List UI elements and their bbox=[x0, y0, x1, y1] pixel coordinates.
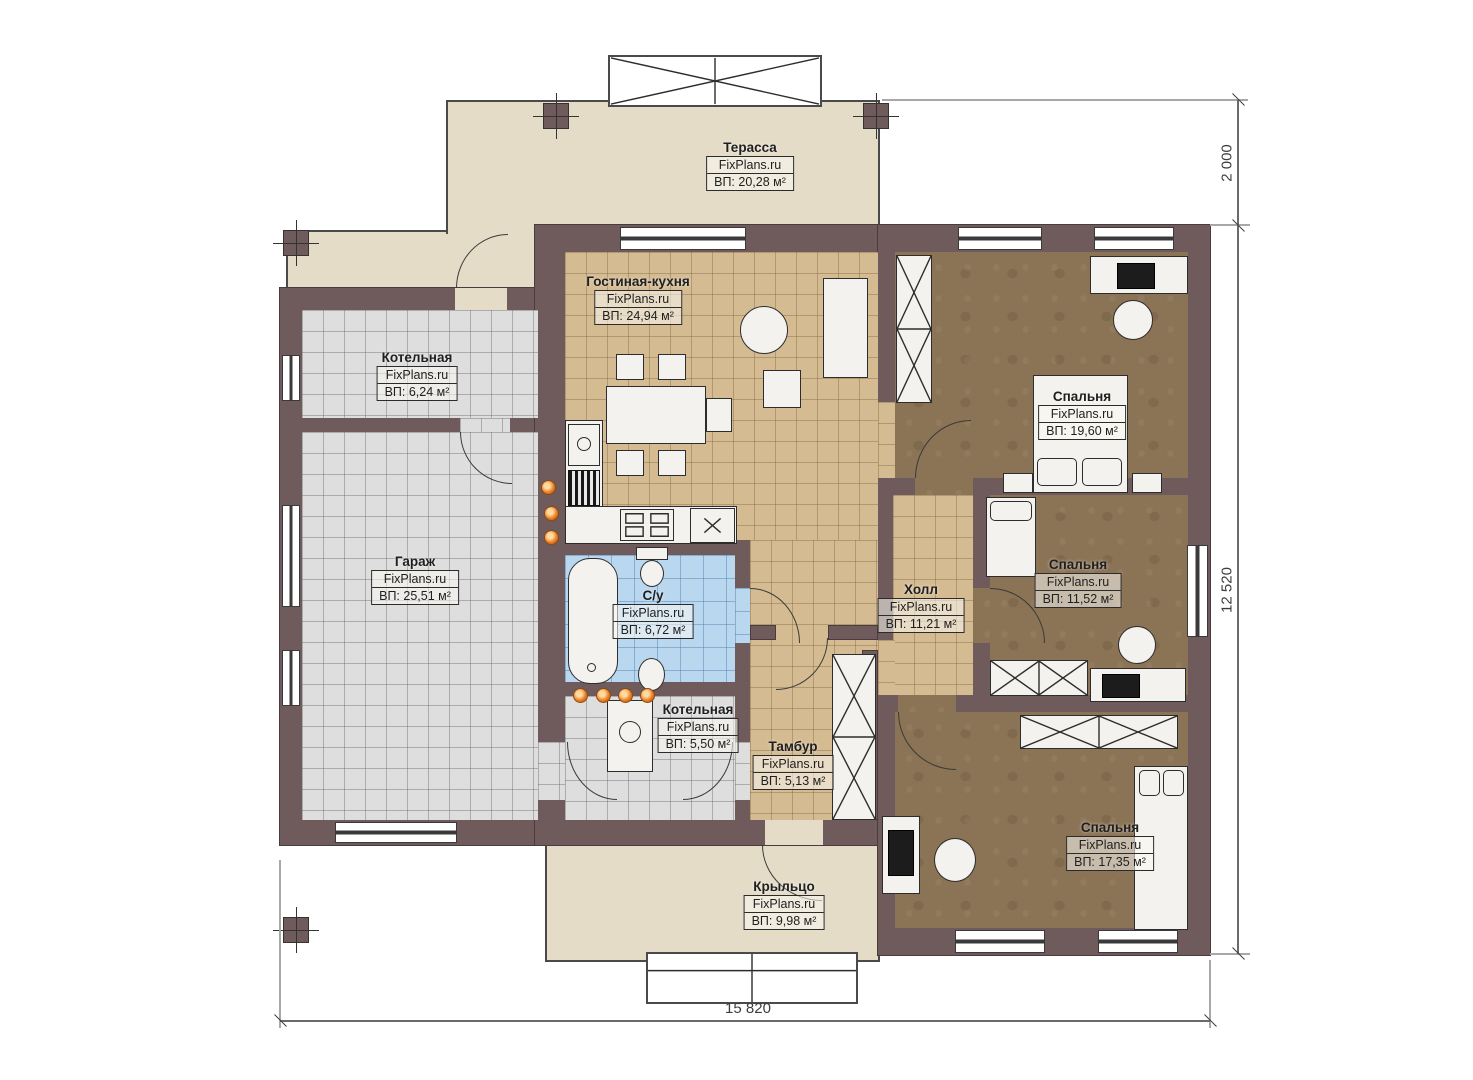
chair bbox=[616, 354, 644, 380]
closet-hall bbox=[990, 660, 1088, 696]
extension-line bbox=[1210, 953, 1250, 955]
window-bedroom2 bbox=[1187, 545, 1208, 637]
garage-floor bbox=[302, 432, 538, 820]
stove bbox=[620, 509, 674, 541]
wall-corridor-stub-right bbox=[828, 625, 878, 640]
room-label-vestibule: Тамбур FixPlans.ru ВП: 5,13 м² bbox=[753, 739, 834, 790]
room-brand: FixPlans.ru bbox=[372, 571, 458, 588]
steps-pattern bbox=[648, 954, 856, 1002]
office-chair bbox=[1118, 626, 1156, 664]
nightstand bbox=[1003, 473, 1033, 493]
room-brand: FixPlans.ru bbox=[754, 756, 833, 773]
sink-basin-icon bbox=[577, 437, 591, 451]
bathroom-sink bbox=[638, 658, 665, 691]
room-name: Крыльцо bbox=[744, 879, 825, 894]
window-boiler1 bbox=[282, 355, 300, 401]
extension-line bbox=[1210, 224, 1250, 226]
room-label-boiler2: Котельная FixPlans.ru ВП: 5,50 м² bbox=[658, 702, 739, 753]
boiler-dial-icon bbox=[619, 721, 641, 743]
opening-living-hall bbox=[878, 402, 895, 478]
nightstand bbox=[1132, 473, 1162, 493]
door-opening-bedroom2 bbox=[973, 588, 990, 643]
door-opening-terrace bbox=[455, 288, 507, 310]
window-garage-a bbox=[282, 505, 300, 607]
valve-icon bbox=[618, 688, 633, 703]
wardrobe-vestibule bbox=[832, 654, 876, 820]
opening-corridor-hall bbox=[878, 640, 895, 695]
room-name: Спальня bbox=[1035, 557, 1122, 572]
room-name: Гараж bbox=[371, 554, 459, 569]
pillow bbox=[1139, 770, 1160, 796]
door-opening-bedroom1 bbox=[915, 478, 973, 495]
round-table bbox=[740, 306, 788, 354]
office-chair bbox=[934, 838, 976, 882]
valve-icon bbox=[544, 506, 559, 521]
column bbox=[863, 103, 889, 129]
room-name: Тамбур bbox=[753, 739, 834, 754]
room-label-bathroom: С/у FixPlans.ru ВП: 6,72 м² bbox=[613, 588, 694, 639]
room-name: Спальня bbox=[1038, 389, 1126, 404]
room-area: ВП: 5,13 м² bbox=[754, 773, 833, 789]
window-bedroom3-b bbox=[1098, 930, 1178, 953]
room-label-garage: Гараж FixPlans.ru ВП: 25,51 м² bbox=[371, 554, 459, 605]
room-label-living-kitchen: Гостиная-кухня FixPlans.ru ВП: 24,94 м² bbox=[586, 274, 689, 325]
column bbox=[543, 103, 569, 129]
pillow bbox=[1082, 458, 1122, 486]
room-area: ВП: 11,52 м² bbox=[1036, 591, 1121, 607]
dimension-line-side bbox=[1237, 226, 1239, 954]
window-bedroom3-a bbox=[955, 930, 1045, 953]
room-name: Котельная bbox=[377, 350, 458, 365]
column bbox=[283, 230, 309, 256]
room-name: Спальня bbox=[1066, 820, 1154, 835]
porch-floor bbox=[545, 845, 880, 962]
room-brand: FixPlans.ru bbox=[707, 157, 793, 174]
toilet-bowl bbox=[640, 560, 664, 587]
room-area: ВП: 19,60 м² bbox=[1039, 423, 1125, 439]
office-chair bbox=[1113, 300, 1153, 340]
room-label-boiler1: Котельная FixPlans.ru ВП: 6,24 м² bbox=[377, 350, 458, 401]
extension-line bbox=[882, 99, 1248, 101]
dim-tick bbox=[1232, 219, 1245, 232]
extension-line bbox=[279, 860, 281, 1028]
x-pattern bbox=[833, 655, 875, 819]
room-brand: FixPlans.ru bbox=[1067, 837, 1153, 854]
bathtub bbox=[568, 558, 618, 684]
room-area: ВП: 6,72 м² bbox=[614, 622, 693, 638]
printer-icon bbox=[1102, 674, 1140, 698]
dining-table bbox=[606, 386, 706, 444]
wardrobe-bedroom1 bbox=[896, 255, 932, 403]
chair bbox=[706, 398, 732, 432]
room-area: ВП: 9,98 м² bbox=[745, 913, 824, 929]
window-garage-b bbox=[282, 650, 300, 706]
kitchen-sink bbox=[568, 424, 600, 466]
dimension-label-bottom: 15 820 bbox=[725, 1000, 771, 1017]
door-opening-garage-boiler2 bbox=[538, 742, 565, 800]
room-label-porch: Крыльцо FixPlans.ru ВП: 9,98 м² bbox=[744, 879, 825, 930]
room-area: ВП: 5,50 м² bbox=[659, 736, 738, 752]
dimension-label-side: 12 520 bbox=[1219, 567, 1236, 613]
room-brand: FixPlans.ru bbox=[1039, 406, 1125, 423]
chair bbox=[658, 354, 686, 380]
room-label-terrace: Терасса FixPlans.ru ВП: 20,28 м² bbox=[706, 140, 794, 191]
room-name: Холл bbox=[878, 582, 965, 597]
door-opening-entrance bbox=[765, 820, 823, 845]
room-area: ВП: 6,24 м² bbox=[378, 384, 457, 400]
room-brand: FixPlans.ru bbox=[659, 719, 738, 736]
room-brand: FixPlans.ru bbox=[745, 896, 824, 913]
roof-vent-symbol bbox=[608, 55, 822, 107]
dimension-line-terrace bbox=[1237, 100, 1239, 226]
dimension-label-terrace: 2 000 bbox=[1219, 144, 1236, 182]
room-area: ВП: 24,94 м² bbox=[595, 308, 681, 324]
toilet-tank bbox=[636, 547, 668, 560]
pillow bbox=[990, 501, 1032, 521]
x-pattern bbox=[991, 661, 1087, 695]
room-name: Терасса bbox=[706, 140, 794, 155]
room-brand: FixPlans.ru bbox=[595, 291, 681, 308]
terrace-floor bbox=[446, 100, 880, 234]
x-pattern bbox=[897, 256, 931, 402]
bathtub-drain-icon bbox=[587, 663, 596, 672]
room-name: Гостиная-кухня bbox=[586, 274, 689, 289]
stove-burners-icon bbox=[621, 510, 673, 540]
x-pattern bbox=[1021, 716, 1177, 748]
valve-icon bbox=[596, 688, 611, 703]
room-brand: FixPlans.ru bbox=[614, 605, 693, 622]
roof-vent-pattern bbox=[610, 57, 820, 105]
appliance-x-icon bbox=[691, 509, 734, 542]
dimension-line-bottom bbox=[280, 1020, 1210, 1022]
room-area: ВП: 11,21 м² bbox=[879, 616, 964, 632]
room-area: ВП: 20,28 м² bbox=[707, 174, 793, 190]
door-opening-bedroom3 bbox=[898, 695, 956, 712]
column bbox=[283, 917, 309, 943]
valve-icon bbox=[573, 688, 588, 703]
printer-icon bbox=[1117, 263, 1155, 289]
valve-icon bbox=[640, 688, 655, 703]
door-opening-bathroom bbox=[735, 588, 750, 643]
porch-steps bbox=[646, 952, 858, 1004]
pillow bbox=[1037, 458, 1077, 486]
window-bedroom1-a bbox=[958, 227, 1042, 250]
fridge bbox=[690, 508, 735, 543]
room-area: ВП: 17,35 м² bbox=[1067, 854, 1153, 870]
room-name: С/у bbox=[613, 588, 694, 603]
coffee-table bbox=[763, 370, 801, 408]
pillow bbox=[1163, 770, 1184, 796]
wardrobe-bedroom3 bbox=[1020, 715, 1178, 749]
valve-icon bbox=[544, 530, 559, 545]
room-label-hall: Холл FixPlans.ru ВП: 11,21 м² bbox=[878, 582, 965, 633]
chair bbox=[616, 450, 644, 476]
window-living bbox=[620, 227, 746, 250]
sofa bbox=[823, 278, 868, 378]
dish-rack bbox=[568, 470, 600, 506]
room-label-bedroom3: Спальня FixPlans.ru ВП: 17,35 м² bbox=[1066, 820, 1154, 871]
chair bbox=[658, 450, 686, 476]
window-bedroom1-b bbox=[1094, 227, 1174, 250]
floor-plan: Терасса FixPlans.ru ВП: 20,28 м² Гостина… bbox=[0, 0, 1473, 1080]
room-area: ВП: 25,51 м² bbox=[372, 588, 458, 604]
garage-door bbox=[335, 822, 457, 843]
room-brand: FixPlans.ru bbox=[879, 599, 964, 616]
door-opening-boiler1-garage bbox=[460, 418, 510, 432]
valve-icon bbox=[541, 480, 556, 495]
computer-icon bbox=[888, 830, 914, 876]
room-label-bedroom2: Спальня FixPlans.ru ВП: 11,52 м² bbox=[1035, 557, 1122, 608]
room-name: Котельная bbox=[658, 702, 739, 717]
room-label-bedroom1: Спальня FixPlans.ru ВП: 19,60 м² bbox=[1038, 389, 1126, 440]
room-brand: FixPlans.ru bbox=[378, 367, 457, 384]
room-brand: FixPlans.ru bbox=[1036, 574, 1121, 591]
